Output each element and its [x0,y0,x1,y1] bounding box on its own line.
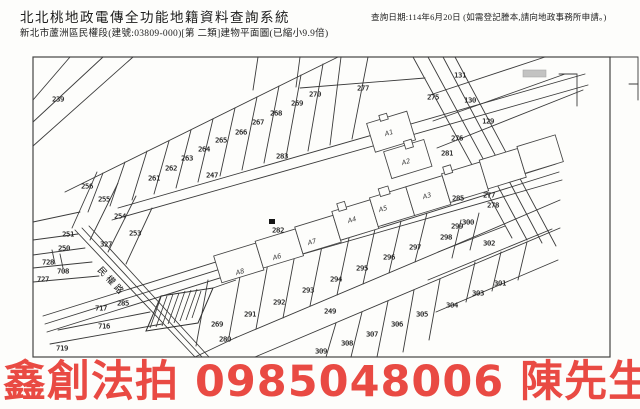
parcel-282-marker [269,219,275,224]
building-outlines [189,68,569,283]
legend-stamp [523,70,546,77]
watermark-text: 鑫創法拍 0985048006 陳先生 [3,347,640,409]
cadastral-query-page: { "header": { "system_title": "北北桃地政電傳全功… [0,0,640,408]
map-frame [33,57,610,357]
